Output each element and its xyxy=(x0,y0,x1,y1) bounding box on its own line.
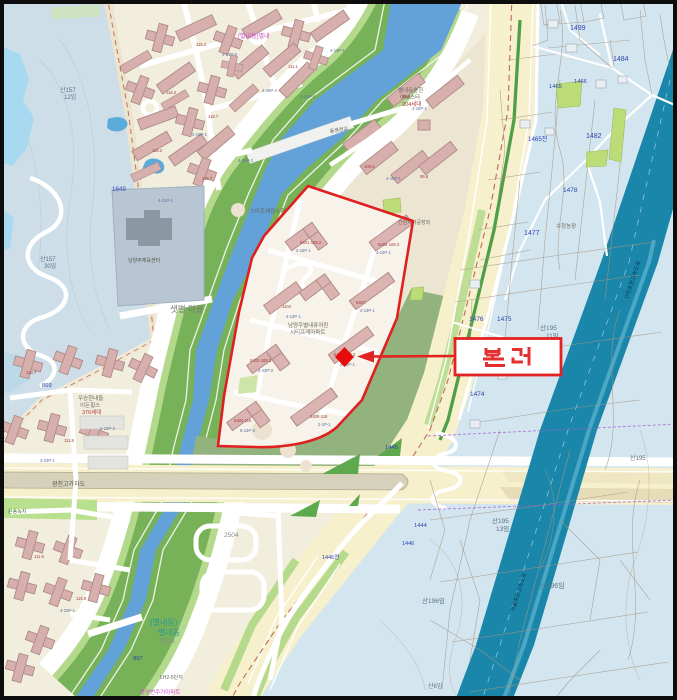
svg-text:간판제작공장와: 간판제작공장와 xyxy=(398,219,431,226)
svg-text:1649: 1649 xyxy=(112,186,126,193)
svg-text:1474: 1474 xyxy=(470,391,485,398)
svg-text:115.8: 115.8 xyxy=(76,596,87,601)
svg-text:수정농장: 수정농장 xyxy=(556,223,576,230)
svg-text:2504: 2504 xyxy=(224,532,239,539)
svg-text:118.7: 118.7 xyxy=(26,370,37,375)
svg-text:샛별 마을: 샛별 마을 xyxy=(170,304,204,314)
svg-text:95.8: 95.8 xyxy=(402,94,411,99)
svg-text:111.8: 111.8 xyxy=(64,438,75,443)
svg-text:3-15P-1: 3-15P-1 xyxy=(412,106,428,111)
svg-text:시티프레아파트: 시티프레아파트 xyxy=(290,328,325,336)
svg-text:118.2: 118.2 xyxy=(152,148,163,153)
svg-text:5-13P-3: 5-13P-3 xyxy=(240,428,256,433)
svg-text:5407: 5407 xyxy=(356,300,366,305)
svg-text:1446전: 1446전 xyxy=(322,553,339,561)
svg-text:2-15P-1: 2-15P-1 xyxy=(296,248,312,253)
svg-text:4-16P-3: 4-16P-3 xyxy=(238,158,254,163)
svg-text:4-23P-2: 4-23P-2 xyxy=(100,426,116,431)
svg-text:2503: 2503 xyxy=(160,638,175,645)
svg-text:은송녹지: 은송녹지 xyxy=(8,508,26,515)
svg-text:광천고가차도: 광천고가차도 xyxy=(52,480,86,488)
svg-text:5405·118: 5405·118 xyxy=(310,414,328,419)
svg-text:3-23P-1: 3-23P-1 xyxy=(40,458,56,463)
svg-text:스마트체험수학: 스마트체험수학 xyxy=(250,207,285,215)
svg-text:115.7: 115.7 xyxy=(202,176,213,181)
svg-text:1478: 1478 xyxy=(563,187,578,194)
svg-text:4-16P-4: 4-16P-4 xyxy=(262,88,278,93)
svg-text:4-13P-1: 4-13P-1 xyxy=(330,48,346,53)
svg-text:111.8: 111.8 xyxy=(34,554,45,559)
svg-text:13임: 13임 xyxy=(496,525,509,533)
svg-text:115.2: 115.2 xyxy=(196,42,207,47)
svg-text:LH2-5단지: LH2-5단지 xyxy=(160,674,183,681)
svg-text:1482: 1482 xyxy=(586,133,602,140)
svg-text:4-15P-1: 4-15P-1 xyxy=(386,176,402,181)
svg-text:남양주별내퓨어린: 남양주별내퓨어린 xyxy=(288,321,328,329)
svg-text:1466: 1466 xyxy=(574,79,587,85)
svg-text:5404·118: 5404·118 xyxy=(234,418,252,423)
svg-text:우승한내들: 우승한내들 xyxy=(78,394,103,402)
svg-text:897: 897 xyxy=(133,656,143,662)
svg-text:1477: 1477 xyxy=(524,230,540,237)
svg-text:중앙번주가아파트: 중앙번주가아파트 xyxy=(140,688,180,696)
svg-text:118.7: 118.7 xyxy=(208,114,219,119)
svg-text:5401·108.2: 5401·108.2 xyxy=(300,240,322,245)
svg-text:4-13P-1: 4-13P-1 xyxy=(360,308,376,313)
svg-text:4-23P-3: 4-23P-3 xyxy=(258,368,274,373)
svg-text:산196임: 산196임 xyxy=(540,581,565,590)
svg-text:별내동: 별내동 xyxy=(158,627,180,637)
svg-text:산195: 산195 xyxy=(540,323,557,332)
svg-text:2-1P-1: 2-1P-1 xyxy=(318,422,331,427)
svg-text:4-23P-1: 4-23P-1 xyxy=(60,608,76,613)
svg-text:남양주체육센터: 남양주체육센터 xyxy=(128,257,160,264)
svg-text:1476: 1476 xyxy=(469,316,484,323)
svg-text:산195: 산195 xyxy=(630,454,646,462)
svg-text:1475: 1475 xyxy=(497,316,512,323)
svg-text:4-13P-1: 4-13P-1 xyxy=(286,314,302,319)
svg-text:118.2: 118.2 xyxy=(166,90,177,95)
svg-text:4-21P-4: 4-21P-4 xyxy=(300,94,316,99)
svg-text:30임: 30임 xyxy=(44,262,56,270)
svg-text:1104: 1104 xyxy=(282,304,292,309)
svg-text:1446: 1446 xyxy=(402,541,414,547)
svg-text:별내유승한: 별내유승한 xyxy=(398,86,423,94)
svg-text:이든힐스: 이든힐스 xyxy=(80,401,100,409)
svg-text:5406·108.3: 5406·108.3 xyxy=(378,242,400,247)
svg-text:(별내동)별내: (별내동)별내 xyxy=(238,32,270,40)
svg-text:376세대: 376세대 xyxy=(82,408,101,416)
svg-text:산157: 산157 xyxy=(60,86,76,94)
svg-text:5403·108.3: 5403·108.3 xyxy=(250,358,272,363)
svg-text:1465전: 1465전 xyxy=(528,135,548,143)
svg-text:2-15P-1: 2-15P-1 xyxy=(192,132,208,137)
svg-text:95.8: 95.8 xyxy=(420,174,429,179)
svg-text:1445: 1445 xyxy=(385,445,398,451)
svg-text:1499: 1499 xyxy=(570,25,586,32)
svg-text:(별내동): (별내동) xyxy=(150,617,178,627)
svg-text:4-21P-1: 4-21P-1 xyxy=(158,198,174,203)
svg-text:산157: 산157 xyxy=(40,255,56,263)
svg-text:4-13P-5: 4-13P-5 xyxy=(222,52,238,57)
svg-text:869: 869 xyxy=(42,383,52,389)
svg-text:1484: 1484 xyxy=(613,56,629,63)
svg-text:1444: 1444 xyxy=(414,523,428,529)
svg-text:산196임: 산196임 xyxy=(422,596,445,605)
svg-text:108.3: 108.3 xyxy=(364,164,375,169)
svg-text:1465: 1465 xyxy=(549,84,562,90)
svg-text:산195: 산195 xyxy=(492,516,509,525)
svg-text:산6임: 산6임 xyxy=(428,682,442,690)
svg-text:4-12P-1: 4-12P-1 xyxy=(376,250,392,255)
svg-text:12임: 12임 xyxy=(64,93,76,101)
svg-text:111.1: 111.1 xyxy=(288,64,299,69)
